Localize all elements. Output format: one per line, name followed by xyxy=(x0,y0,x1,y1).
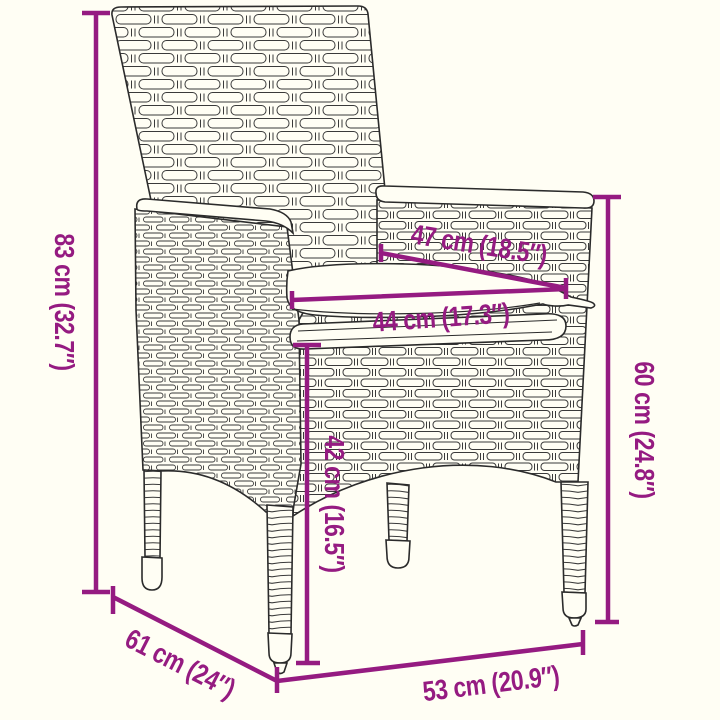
dimension-line-armrest-height xyxy=(593,197,621,622)
chair-leg-rear-right xyxy=(386,483,410,568)
dimension-diagram: 83 cm (32.7″) 47 cm (18.5″) 44 cm (17.3″… xyxy=(0,0,720,720)
dimension-label-armrest-height: 60 cm (24.8″) xyxy=(628,361,660,498)
dimension-line-overall-height xyxy=(82,13,110,592)
dimension-label-overall-height: 83 cm (32.7″) xyxy=(48,233,80,370)
chair-illustration xyxy=(0,0,720,720)
chair-left-side-panel xyxy=(135,209,301,516)
dimension-label-seat-height: 42 cm (16.5″) xyxy=(318,435,350,572)
chair-leg-front-right xyxy=(561,482,588,626)
chair-leg-front-left xyxy=(267,505,293,674)
chair-leg-rear-left xyxy=(142,470,162,590)
